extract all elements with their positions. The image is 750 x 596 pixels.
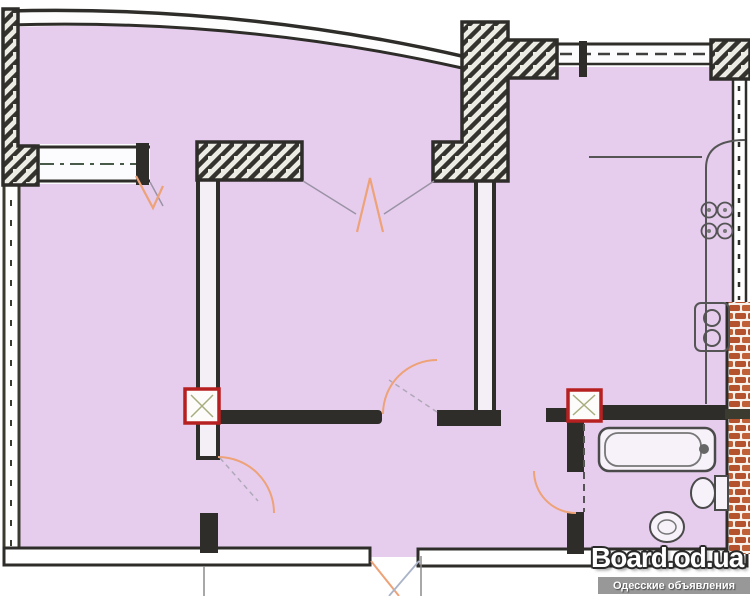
entrance-opening-marks: [371, 561, 419, 596]
junction-marker-right: [568, 390, 601, 421]
left-window: [36, 143, 150, 185]
watermark-tagline: Одесские объявления: [613, 580, 735, 592]
top-right-pier: [711, 40, 750, 79]
floorplan-drawing: [0, 0, 750, 596]
pier-a: [197, 142, 302, 180]
wall-bathroom-west-stub: [567, 512, 584, 554]
bathtub: [599, 428, 715, 471]
wall-bathroom-north: [583, 405, 747, 420]
toilet: [691, 476, 728, 510]
wall-corridor-north-a: [214, 410, 382, 424]
wall-bathroom-west: [567, 419, 584, 472]
floor-area: [14, 26, 741, 557]
floorplan-image: Board.od.ua Одесские объявления: [0, 0, 750, 596]
wall-bedroom-east-stub: [200, 513, 218, 553]
wall-kitchen-west: [476, 179, 494, 421]
junction-marker-left: [185, 389, 219, 423]
watermark-logo: Board.od.ua: [591, 542, 750, 574]
watermark-tagline-bar: Одесские объявления: [598, 577, 750, 594]
window-mullion: [579, 41, 587, 77]
bottom-wall-left: [4, 548, 370, 565]
washbasin: [650, 512, 684, 542]
wall-corridor-north-b: [437, 410, 501, 426]
